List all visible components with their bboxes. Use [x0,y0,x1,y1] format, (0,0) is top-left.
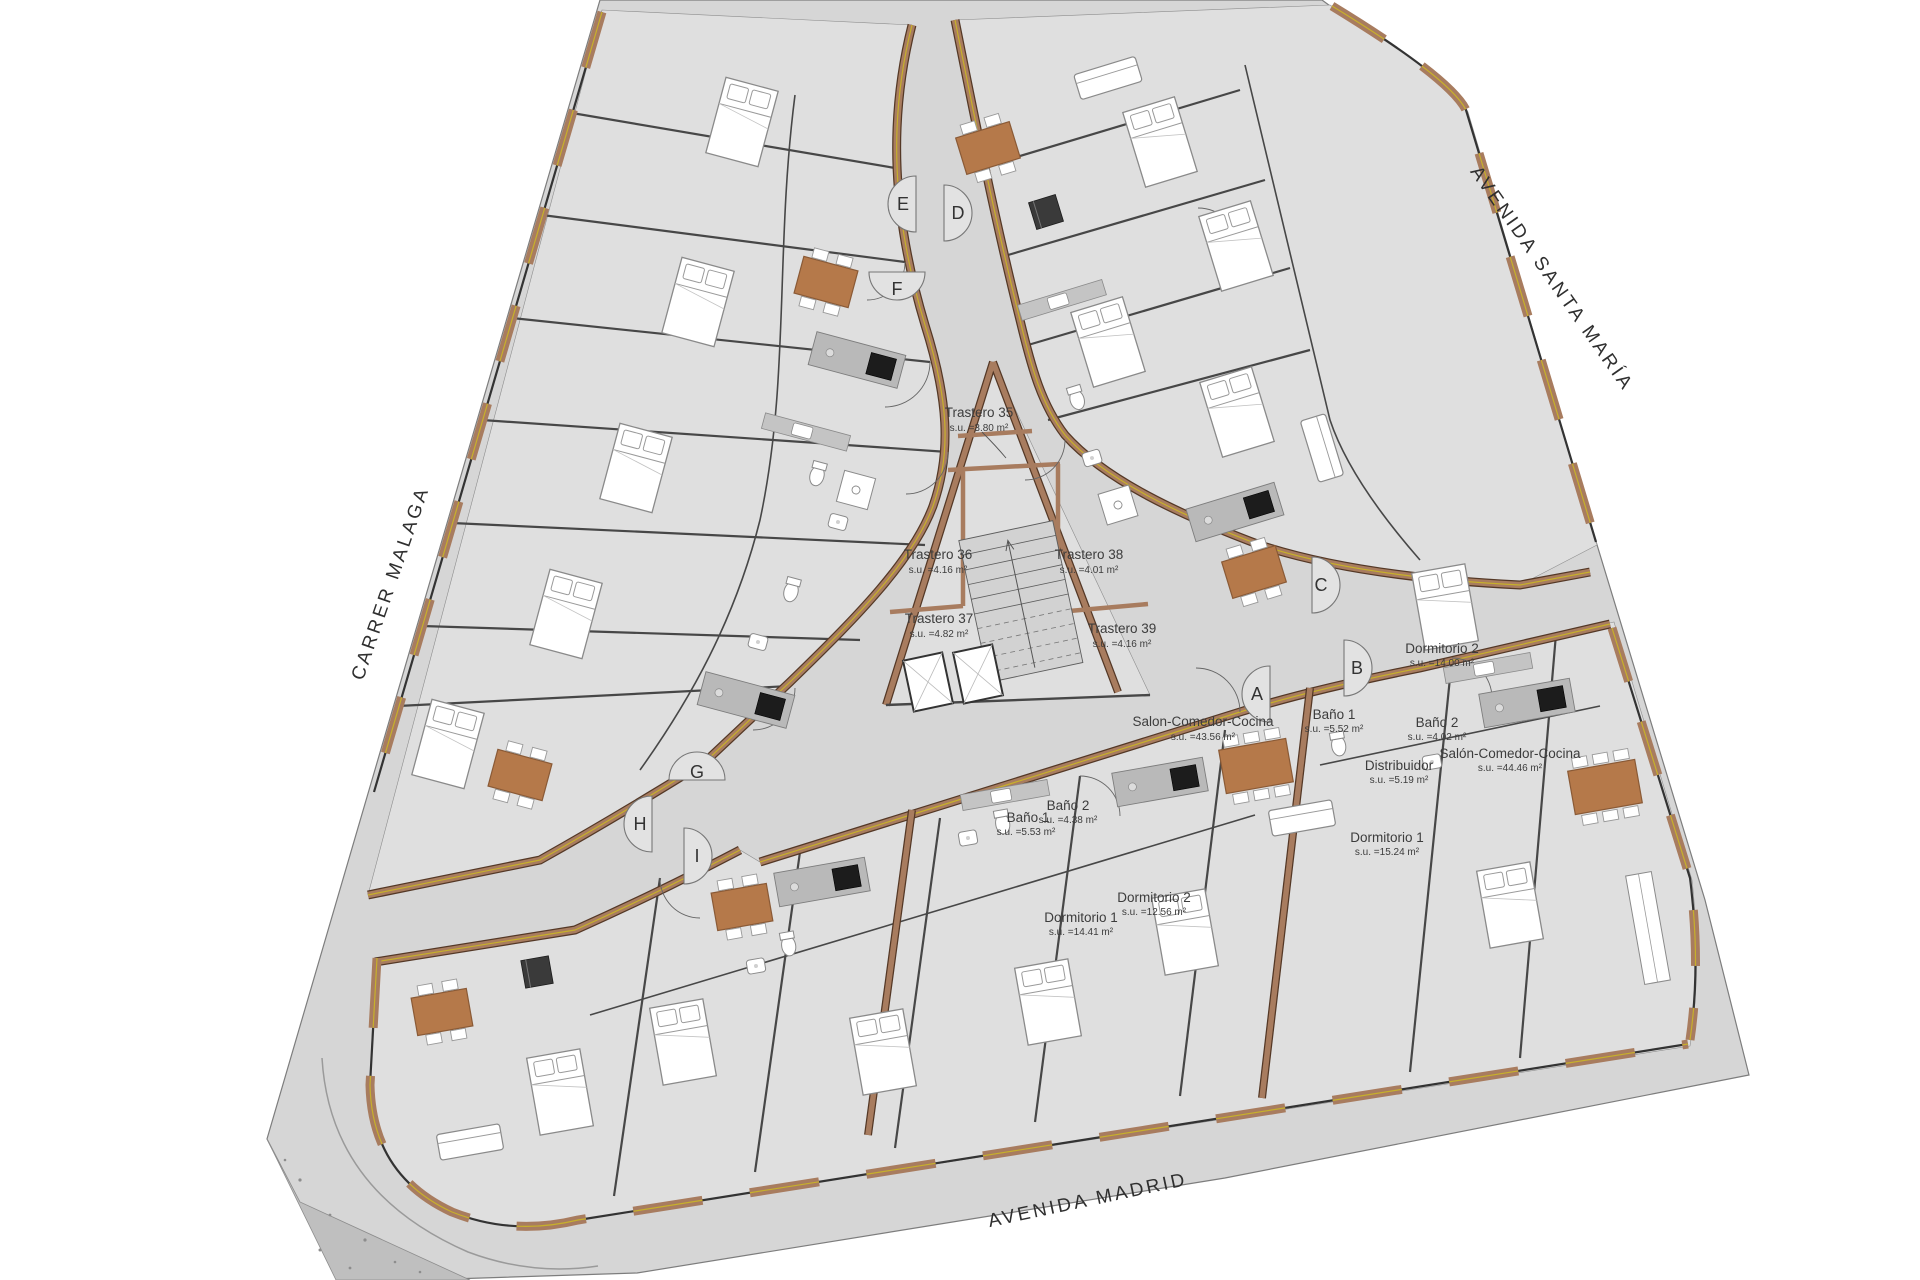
room-area: s.u. =5.19 m² [1370,775,1429,786]
entrance-letter-B: B [1351,658,1363,678]
storage-label: Trastero 38 [1055,547,1124,562]
room-area: s.u. =12.56 m² [1122,907,1187,918]
entrance-letter-A: A [1251,684,1263,704]
room-area: s.u. =5.52 m² [1305,724,1364,735]
room-label: Dormitorio 2 [1405,641,1479,656]
room-label: Salon-Comedor-Cocina [1132,714,1274,729]
storage-area: s.u. =4.01 m² [1060,565,1119,576]
entrance-letter-H: H [634,814,647,834]
room-area: s.u. =14.41 m² [1049,927,1114,938]
room-label: Dormitorio 1 [1044,910,1118,925]
room-area: s.u. =44.46 m² [1478,763,1543,774]
room-label: Dormitorio 2 [1117,890,1191,905]
room-area: s.u. =4.02 m² [1408,732,1467,743]
storage-label: Trastero 35 [945,405,1014,420]
storage-label: Trastero 39 [1088,621,1157,636]
room-label: Salón-Comedor-Cocina [1439,746,1581,761]
room-label: Baño 2 [1416,715,1459,730]
storage-area: s.u. =4.16 m² [1093,639,1152,650]
storage-label: Trastero 36 [904,547,973,562]
entrance-letter-F: F [892,279,903,299]
entrance-letter-C: C [1315,575,1328,595]
room-area: s.u. =15.24 m² [1355,847,1420,858]
entrance-letter-I: I [694,846,699,866]
room-label: Baño 1 [1313,707,1356,722]
floor-plan-page: A B C D E F G H I Trastero 35 s.u. =3.80… [0,0,1920,1280]
storage-label: Trastero 37 [905,611,974,626]
bathroom-sink [746,958,766,975]
room-area: s.u. =4.38 m² [1039,815,1098,826]
room-label: Dormitorio 1 [1350,830,1424,845]
room-area: s.u. =5.53 m² [997,827,1056,838]
entrance-letter-E: E [897,194,909,214]
dark-armchair [521,956,553,988]
room-label: Baño 2 [1047,798,1090,813]
room-area: s.u. =43.56 m² [1171,732,1236,743]
storage-area: s.u. =4.82 m² [910,629,969,640]
storage-area: s.u. =4.16 m² [909,565,968,576]
storage-area: s.u. =3.80 m² [950,423,1009,434]
entrance-letter-G: G [690,762,704,782]
room-area: s.u. =14.00 m² [1410,658,1475,669]
bathroom-sink [958,830,978,847]
room-label: Distribuidor [1365,758,1434,773]
entrance-letter-D: D [952,203,965,223]
floor-plan-svg: A B C D E F G H I Trastero 35 s.u. =3.80… [0,0,1920,1280]
